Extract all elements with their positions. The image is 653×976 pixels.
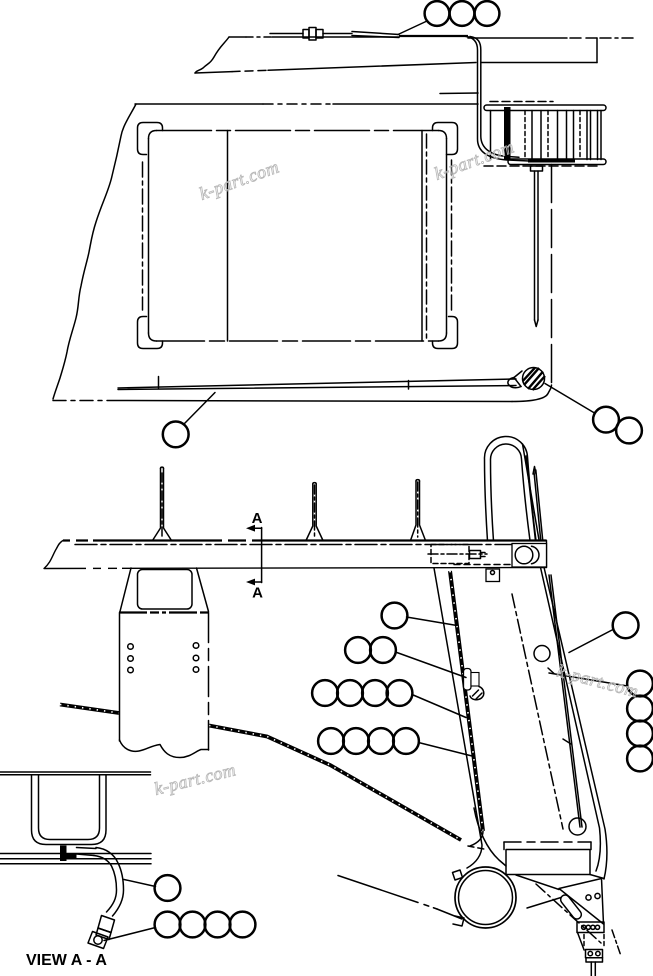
svg-text:A: A bbox=[252, 510, 263, 527]
svg-text:A: A bbox=[252, 585, 263, 602]
svg-text:VIEW A - A: VIEW A - A bbox=[26, 952, 107, 969]
